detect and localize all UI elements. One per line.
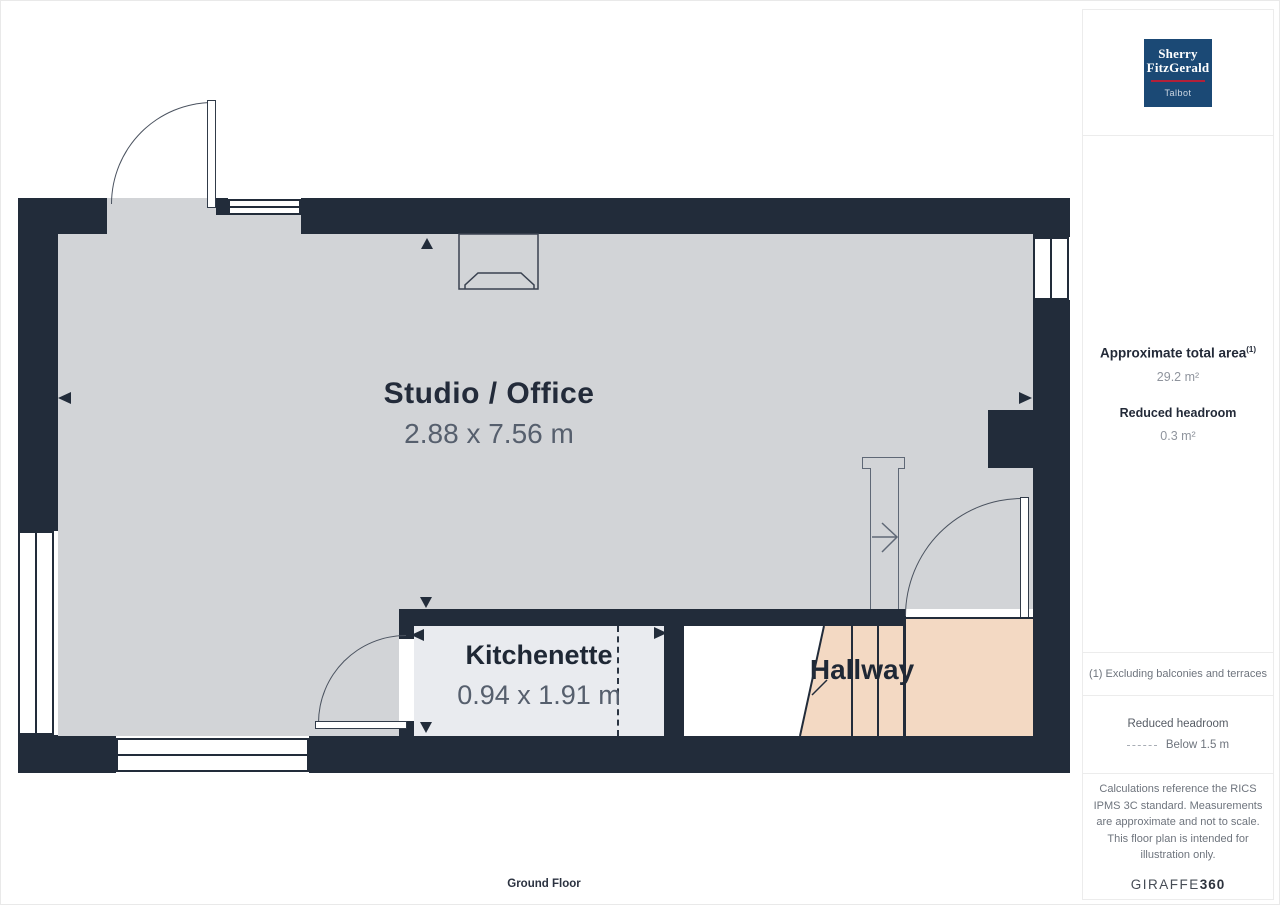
wall-bottom-left	[18, 736, 116, 773]
info-sidebar: Sherry FitzGerald Talbot Approximate tot…	[1082, 9, 1274, 900]
legend-title: Reduced headroom	[1127, 718, 1228, 730]
measure-arrow-up	[421, 238, 433, 249]
disclaimer-text: Calculations reference the RICS IPMS 3C …	[1092, 781, 1264, 864]
room-label-hallway: Hallway	[767, 654, 957, 686]
window-mullion	[229, 206, 300, 208]
footnote-section: (1) Excluding balconies and terraces	[1083, 652, 1273, 695]
wall-top-right	[301, 198, 1070, 234]
room-dimensions: 0.94 x 1.91 m	[414, 680, 664, 711]
wall-hallway-top	[666, 609, 906, 626]
agency-logo: Sherry FitzGerald Talbot	[1144, 39, 1212, 107]
window-left	[18, 531, 54, 735]
entry-door-swing	[111, 102, 213, 204]
measure-arrow-down	[420, 722, 432, 733]
room-name: Studio / Office	[289, 377, 689, 411]
room-name: Kitchenette	[414, 640, 664, 671]
total-area-value: 29.2 m²	[1157, 370, 1199, 384]
window-bottom	[116, 738, 309, 772]
provider-name: GIRAFFE	[1131, 877, 1200, 892]
agency-office-name: Talbot	[1164, 88, 1191, 98]
window-top	[228, 199, 301, 215]
room-name: Hallway	[767, 654, 957, 686]
room-label-kitchenette: Kitchenette 0.94 x 1.91 m	[414, 640, 664, 711]
legend-section: Reduced headroom Below 1.5 m	[1083, 695, 1273, 773]
stairs-flight-column	[870, 468, 899, 609]
window-mullion	[117, 754, 308, 756]
floorplan-page: Studio / Office 2.88 x 7.56 m Kitchenett…	[0, 0, 1280, 905]
area-summary-section: Approximate total area(1) 29.2 m² Reduce…	[1083, 135, 1273, 652]
room-dimensions: 2.88 x 7.56 m	[289, 418, 689, 450]
footnote-text: (1) Excluding balconies and terraces	[1089, 668, 1267, 680]
entry-threshold	[107, 215, 308, 234]
hallway-door-leaf	[1020, 497, 1029, 618]
measure-arrow-down	[420, 597, 432, 608]
wall-bottom-main	[309, 736, 1070, 773]
logo-section: Sherry FitzGerald Talbot	[1083, 10, 1273, 135]
total-area-title-text: Approximate total area	[1100, 345, 1246, 360]
footnote-marker: (1)	[1246, 345, 1256, 354]
agency-name-line2: FitzGerald	[1147, 61, 1210, 75]
wall-kitchenette-hallway	[664, 609, 684, 736]
window-mullion	[1050, 238, 1052, 299]
logo-underline	[1151, 80, 1205, 82]
reduced-headroom-title: Reduced headroom	[1120, 406, 1237, 420]
dashed-line-sample	[1127, 745, 1157, 746]
measure-arrow-right	[1019, 392, 1032, 404]
legend-row: Below 1.5 m	[1127, 739, 1229, 751]
room-label-studio: Studio / Office 2.88 x 7.56 m	[289, 377, 689, 450]
provider-suffix: 360	[1200, 877, 1226, 892]
wall-right-upper	[1033, 198, 1070, 237]
measure-arrow-left	[58, 392, 71, 404]
floor-title: Ground Floor	[444, 878, 644, 890]
wall-left-upper	[18, 198, 58, 531]
kitchenette-door-leaf	[315, 721, 407, 729]
entry-door-leaf	[207, 100, 216, 208]
agency-name-line1: Sherry	[1158, 47, 1197, 61]
wall-right-main	[1033, 300, 1070, 773]
floor-plan: Studio / Office 2.88 x 7.56 m Kitchenett…	[1, 1, 1081, 905]
measure-arrow-right	[654, 627, 667, 639]
window-mullion	[35, 532, 37, 734]
reduced-headroom-value: 0.3 m²	[1160, 429, 1195, 443]
wall-top-stub	[216, 198, 228, 215]
total-area-title: Approximate total area(1)	[1100, 345, 1256, 361]
disclaimer-section: Calculations reference the RICS IPMS 3C …	[1083, 773, 1273, 899]
legend-label: Below 1.5 m	[1166, 739, 1229, 751]
wall-right-pier	[988, 410, 1033, 468]
window-right	[1033, 237, 1069, 300]
wall-kitchenette-top	[399, 609, 666, 626]
provider-logo: GIRAFFE360	[1131, 877, 1226, 892]
